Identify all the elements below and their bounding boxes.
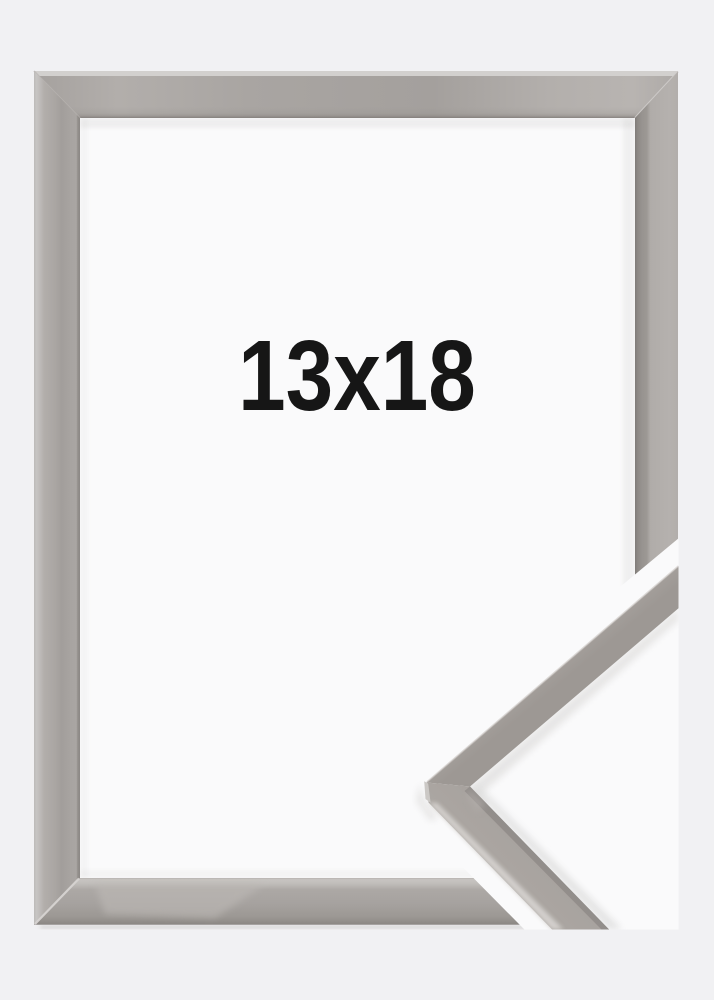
svg-text:13x18: 13x18 (238, 320, 476, 432)
